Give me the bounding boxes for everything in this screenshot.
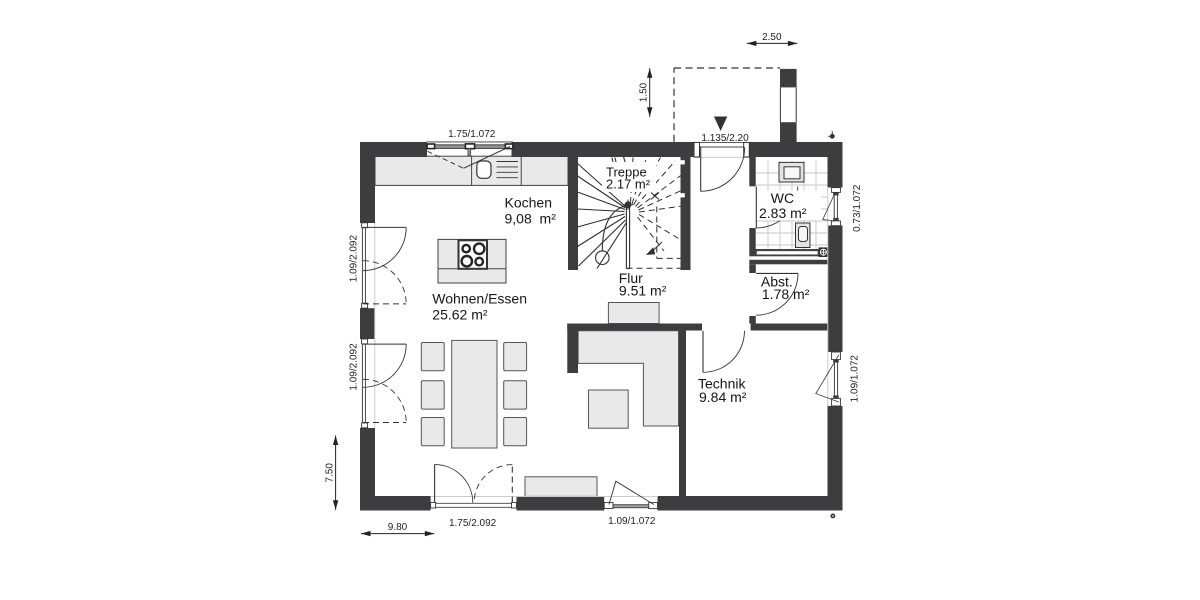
svg-text:WC: WC	[771, 190, 794, 206]
svg-text:Wohnen/Essen: Wohnen/Essen	[432, 291, 527, 307]
svg-text:7.50: 7.50	[325, 463, 336, 483]
svg-text:1.135/2.20: 1.135/2.20	[701, 133, 749, 144]
svg-text:9.51 m²: 9.51 m²	[619, 282, 667, 298]
svg-text:1.75/1.072: 1.75/1.072	[448, 129, 496, 140]
svg-text:2.83 m²: 2.83 m²	[759, 205, 807, 221]
svg-text:9,08 m²: 9,08 m²	[505, 210, 557, 226]
svg-text:Kochen: Kochen	[505, 195, 552, 211]
svg-text:0.73/1.072: 0.73/1.072	[852, 184, 863, 232]
svg-text:2.50: 2.50	[762, 32, 782, 43]
svg-text:1.09/1.072: 1.09/1.072	[608, 516, 656, 527]
svg-text:1.09/2.092: 1.09/2.092	[348, 343, 359, 391]
svg-text:1.50: 1.50	[639, 82, 650, 102]
svg-text:25.62 m²: 25.62 m²	[432, 307, 488, 323]
svg-text:9.80: 9.80	[388, 522, 408, 533]
svg-text:9.84 m²: 9.84 m²	[699, 389, 747, 405]
svg-text:1.09/1.072: 1.09/1.072	[849, 355, 860, 403]
svg-text:1.75/2.092: 1.75/2.092	[449, 518, 497, 529]
svg-text:2.17 m²: 2.17 m²	[606, 177, 651, 192]
svg-text:1.09/2.092: 1.09/2.092	[348, 235, 359, 283]
svg-text:1.78 m²: 1.78 m²	[762, 286, 810, 302]
